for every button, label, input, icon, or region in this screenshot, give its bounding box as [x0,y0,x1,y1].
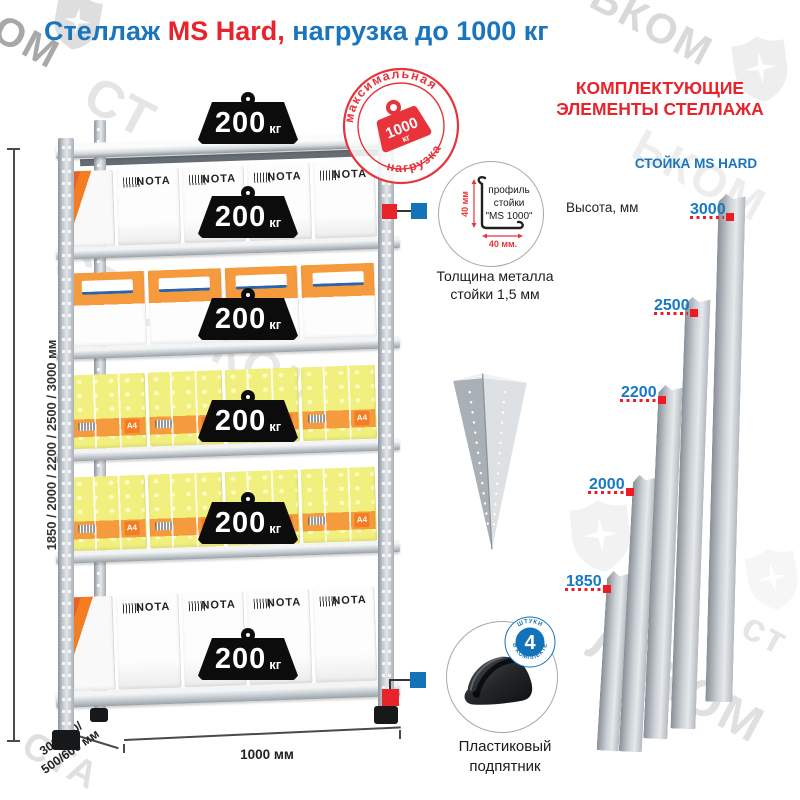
box-brand-label: NOTA [201,599,236,612]
components-header-line1: КОМПЛЕКТУЮЩИЕ [540,78,780,99]
dotted-leader [654,312,688,315]
profile-label-line3: "MS 1000" [485,211,533,222]
paper-pack: A4 [301,365,377,442]
weight-value: 200 [215,303,266,336]
barcode-icon [155,522,172,531]
profile-caption: Толщина металла стойки 1,5 мм [415,267,575,303]
rack-foot [90,708,108,722]
blue-marker [411,203,427,219]
weight-200kg: 200кг [196,186,300,238]
dotted-leader [690,216,724,219]
profile-caption-line2: стойки 1,5 мм [415,285,575,303]
dotted-leader [565,588,601,591]
barcode-icon [155,420,172,429]
dotted-leader [588,491,624,494]
paper-pack: A4 [71,475,147,552]
red-marker [726,213,734,221]
components-header: КОМПЛЕКТУЮЩИЕ ЭЛЕМЕНТЫ СТЕЛЛАЖА [540,78,780,120]
a4-label: A4 [124,521,139,536]
weight-value: 200 [215,201,266,234]
connector-line [390,679,411,681]
foot-caption: Пластиковый подпятник [430,737,580,776]
a4-label: A4 [354,411,369,426]
weight-unit: кг [269,521,281,536]
box-label [82,279,133,295]
weight-unit: кг [269,121,281,136]
watermark-text: СТ [74,65,166,152]
a4-label: A4 [124,419,139,434]
profile-dim-horizontal: 40 мм. [489,239,517,249]
profile-caption-line1: Толщина металла [415,267,575,285]
paper-pack: A4 [301,467,377,544]
post-profile-detail: 40 мм 40 мм. профиль стойки "MS 1000" [438,161,544,267]
box-brand-label: NOTA [332,594,367,607]
rack-foot [52,730,80,750]
paper-box: NOTA [312,587,378,683]
angle-profile-3d [444,366,536,558]
weight-value: 200 [215,107,266,140]
weight-200kg: 200кг [196,92,300,144]
components-header-line2: ЭЛЕМЕНТЫ СТЕЛЛАЖА [540,99,780,120]
rack-post-front-left [58,138,74,748]
connector-line [396,210,412,212]
paper-box [71,271,147,348]
box-brand-label: NOTA [267,596,302,609]
red-marker [690,309,698,317]
weight-value: 200 [215,507,266,540]
box-brand-label: NOTA [267,170,302,183]
watermark-text: ст [734,604,796,665]
barcode-icon [309,516,326,525]
product-infographic: ОМ ЬКОМ СТ СТАЛЬКОМ ЬКОМ ЛЬКОМ СТА ст Ст… [0,0,800,800]
weight-200kg: 200кг [196,288,300,340]
post-3000 [705,194,745,703]
post-subheader: СТОЙКА MS HARD [628,156,764,171]
weight-value: 200 [215,405,266,438]
quantity-badge: 4 штуки в комплекте [504,616,556,668]
rack-foot [374,706,398,724]
page-title: Стеллаж MS Hard, нагрузка до 1000 кг [44,16,549,47]
red-marker [382,204,397,219]
paper-box-side [71,170,116,247]
profile-label-line2: стойки [494,198,525,209]
width-dimension-label: 1000 мм [222,747,312,762]
dimension-tick [399,730,401,739]
foot-caption-line1: Пластиковый [430,737,580,757]
red-marker [658,396,666,404]
blue-marker [410,672,426,688]
box-brand-label: NOTA [202,173,237,186]
title-part-red: MS Hard, [168,16,285,46]
paper-pack: A4 [71,373,147,450]
weight-200kg: 200кг [196,390,300,442]
dimension-tick [7,740,20,742]
paper-box [301,263,377,340]
height-dimension-line [13,148,15,742]
profile-dim-vertical: 40 мм [460,191,470,217]
box-brand-label: NOTA [136,601,171,614]
dimension-tick [7,148,20,150]
weight-unit: кг [269,657,281,672]
barcode-icon [78,524,95,533]
width-dimension-line [124,726,401,741]
watermark-text: ЬКОМ [582,0,721,76]
brand-shield-icon [743,544,800,614]
weight-200kg: 200кг [196,628,300,680]
paper-box: NOTA [116,168,181,246]
weight-200kg: 200кг [196,492,300,544]
profile-label-line1: профиль [488,184,529,196]
weight-unit: кг [269,419,281,434]
red-marker [382,689,399,706]
weight-unit: кг [269,215,281,230]
red-marker [603,585,611,593]
weight-unit: кг [269,317,281,332]
title-part-blue: нагрузка до 1000 кг [292,16,548,46]
paper-box: NOTA [115,594,181,690]
weight-value: 200 [215,643,266,676]
a4-label: A4 [354,513,369,528]
red-marker [626,488,634,496]
badge-number: 4 [524,632,536,654]
box-label [312,271,363,287]
paper-box-side [70,596,115,691]
dotted-leader [620,399,656,402]
foot-caption-line2: подпятник [430,757,580,777]
dimension-tick [123,744,125,753]
barcode-icon [78,422,95,431]
box-brand-label: NOTA [136,175,171,188]
barcode-icon [309,414,326,423]
brand-shield-icon [568,497,633,575]
height-units-label: Высота, мм [566,200,638,215]
title-part-blue: Стеллаж [44,16,160,46]
